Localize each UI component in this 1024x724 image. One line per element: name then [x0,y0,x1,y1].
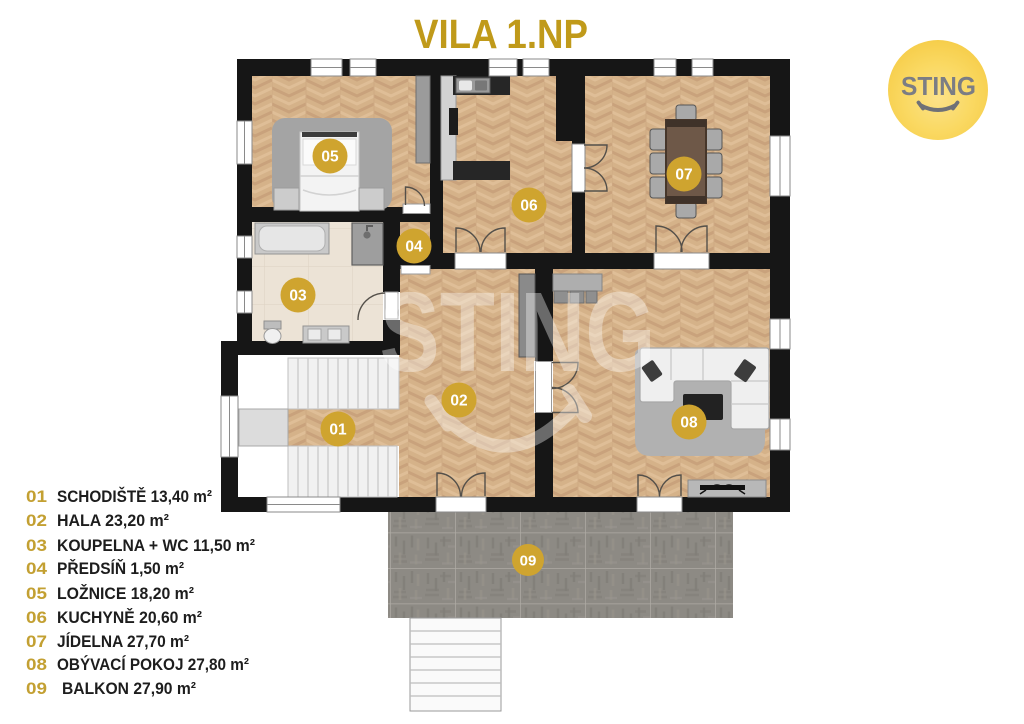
svg-text:PŘEDSÍŇ 1,50 m²: PŘEDSÍŇ 1,50 m² [57,559,184,578]
svg-text:01: 01 [26,487,47,506]
svg-text:06: 06 [26,608,47,627]
svg-text:03: 03 [26,536,47,555]
svg-text:08: 08 [26,655,47,674]
svg-text:09: 09 [26,679,47,698]
svg-text:KOUPELNA + WC 11,50 m²: KOUPELNA + WC 11,50 m² [57,536,255,555]
svg-text:VILA 1.NP: VILA 1.NP [414,11,588,57]
svg-text:KUCHYNĚ 20,60 m²: KUCHYNĚ 20,60 m² [57,608,202,627]
svg-text:04: 04 [405,239,423,256]
svg-text:08: 08 [680,415,698,432]
svg-text:01: 01 [329,422,347,439]
svg-text:07: 07 [675,167,692,184]
svg-text:07: 07 [26,632,47,651]
svg-text:03: 03 [289,288,307,305]
svg-text:OBÝVACÍ POKOJ 27,80 m²: OBÝVACÍ POKOJ 27,80 m² [57,655,249,674]
svg-text:05: 05 [321,149,339,166]
svg-text:STING: STING [901,71,976,101]
svg-text:05: 05 [26,584,47,603]
svg-text:SCHODIŠTĚ 13,40 m²: SCHODIŠTĚ 13,40 m² [57,487,212,506]
svg-text:LOŽNICE 18,20 m²: LOŽNICE 18,20 m² [57,584,194,603]
svg-text:04: 04 [26,559,48,578]
svg-text:JÍDELNA 27,70 m²: JÍDELNA 27,70 m² [57,632,189,651]
svg-text:02: 02 [450,393,467,410]
svg-text:HALA 23,20 m²: HALA 23,20 m² [57,511,169,530]
svg-text:STING: STING [380,269,656,395]
svg-text:02: 02 [26,511,47,530]
svg-text:09: 09 [520,553,537,570]
svg-text:06: 06 [520,198,538,215]
svg-text:BALKON 27,90 m²: BALKON 27,90 m² [62,679,196,698]
